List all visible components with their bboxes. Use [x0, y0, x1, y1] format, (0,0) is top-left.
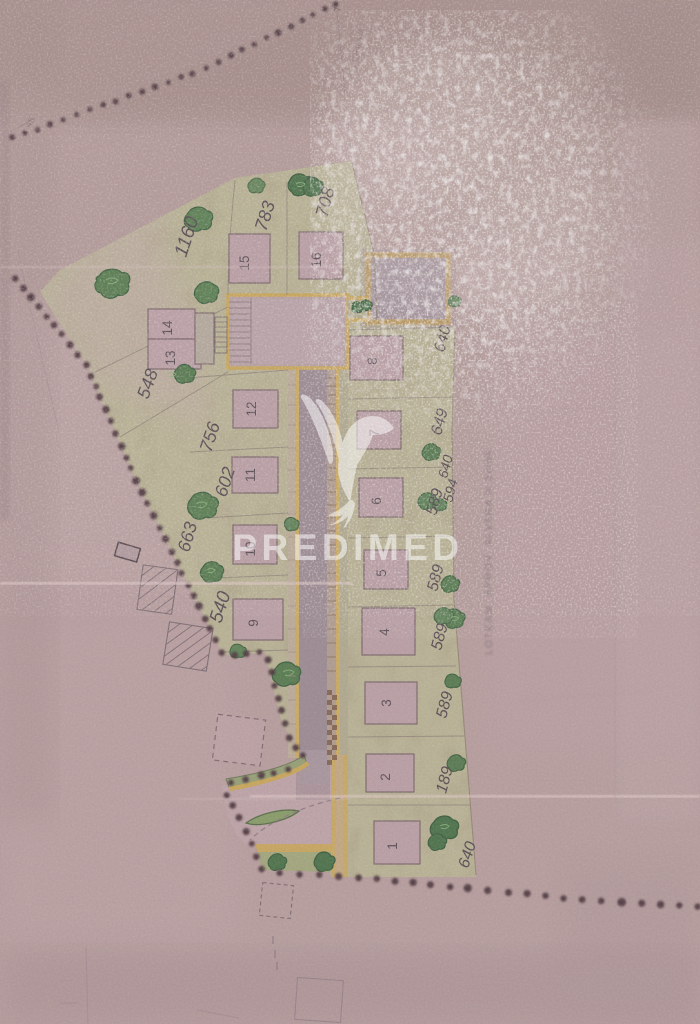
svg-text:PREDIMED: PREDIMED [232, 527, 463, 568]
